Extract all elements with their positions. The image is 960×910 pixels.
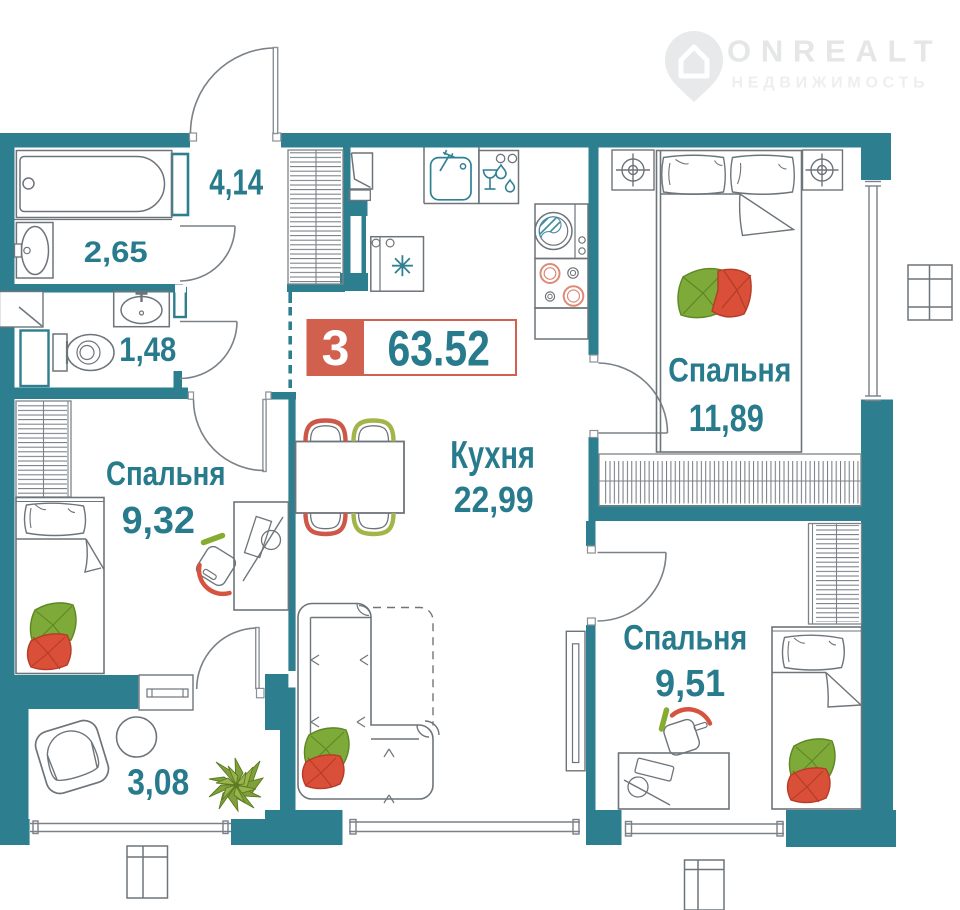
- svg-text:4,14: 4,14: [209, 162, 263, 202]
- svg-text:Спальня: Спальня: [106, 454, 226, 493]
- svg-text:ONREALT: ONREALT: [727, 34, 942, 69]
- svg-text:9,32: 9,32: [122, 500, 195, 542]
- svg-text:Спальня: Спальня: [668, 350, 791, 389]
- svg-text:22,99: 22,99: [454, 480, 534, 520]
- svg-text:1,48: 1,48: [119, 330, 176, 369]
- svg-text:9,51: 9,51: [655, 661, 725, 704]
- svg-text:Спальня: Спальня: [623, 618, 747, 657]
- svg-text:11,89: 11,89: [689, 398, 764, 440]
- svg-text:3,08: 3,08: [127, 762, 189, 802]
- svg-text:НЕДВИЖИМОСТЬ: НЕДВИЖИМОСТЬ: [732, 75, 930, 92]
- svg-text:2,65: 2,65: [84, 235, 148, 268]
- svg-text:3: 3: [322, 320, 350, 376]
- svg-text:63.52: 63.52: [388, 321, 490, 377]
- svg-text:Кухня: Кухня: [450, 434, 535, 477]
